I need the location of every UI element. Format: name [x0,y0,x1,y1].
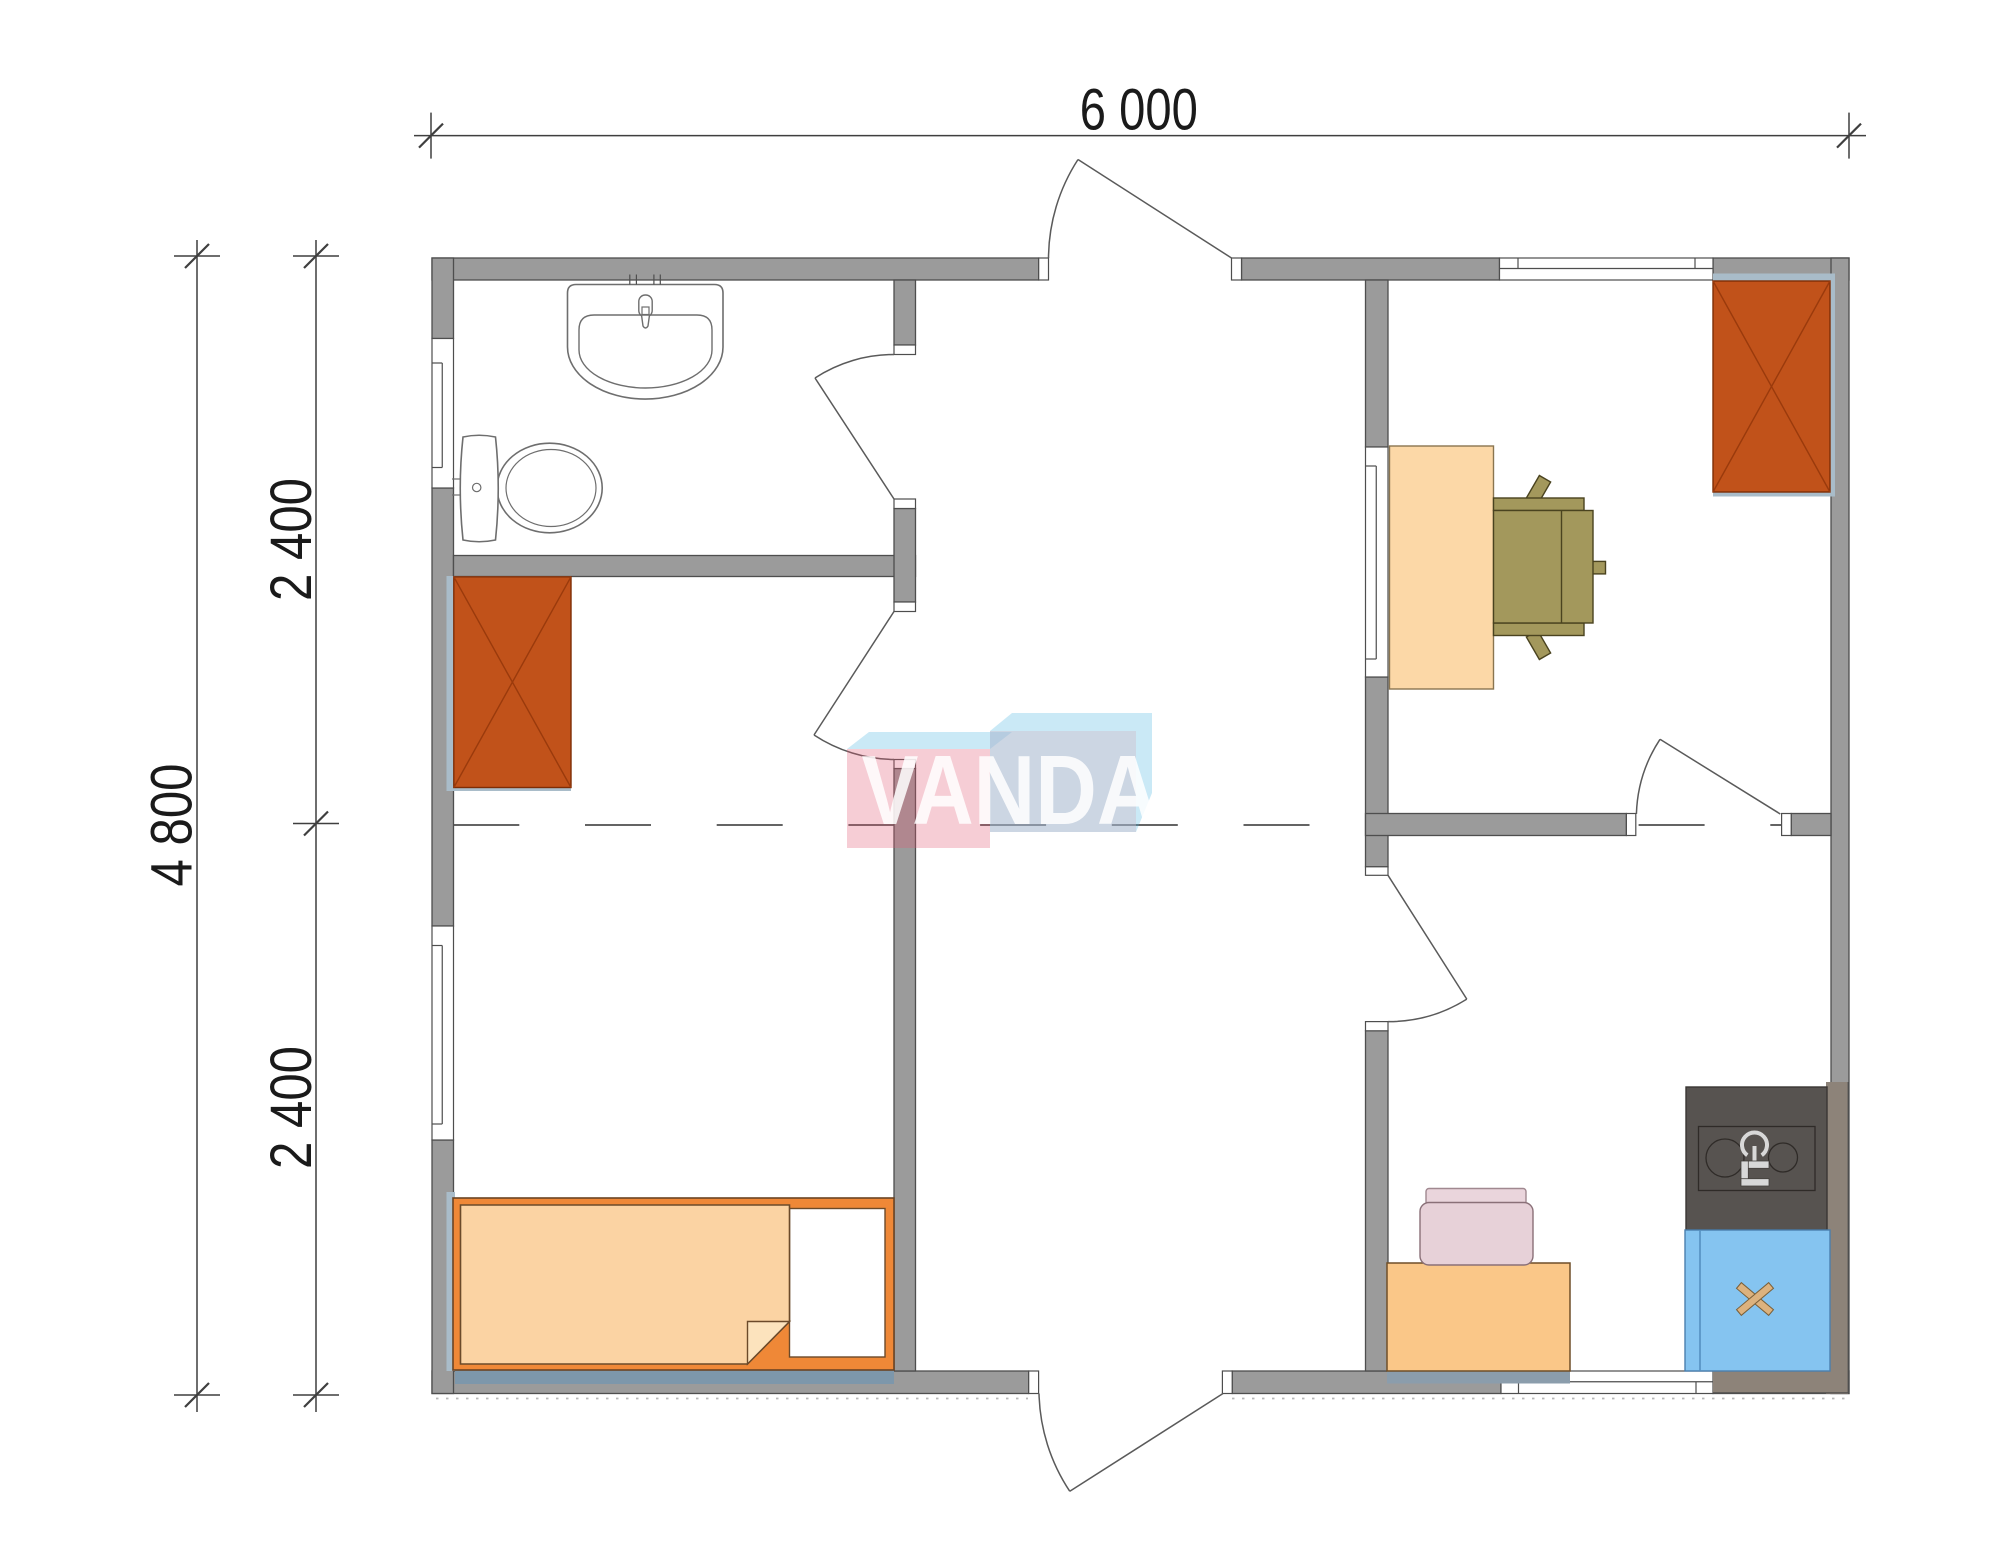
svg-text:4 800: 4 800 [140,764,205,887]
svg-text:2 400: 2 400 [259,1046,324,1169]
svg-text:VANDA: VANDA [862,735,1159,845]
svg-text:6 000: 6 000 [1080,78,1198,143]
svg-text:2 400: 2 400 [259,478,324,601]
